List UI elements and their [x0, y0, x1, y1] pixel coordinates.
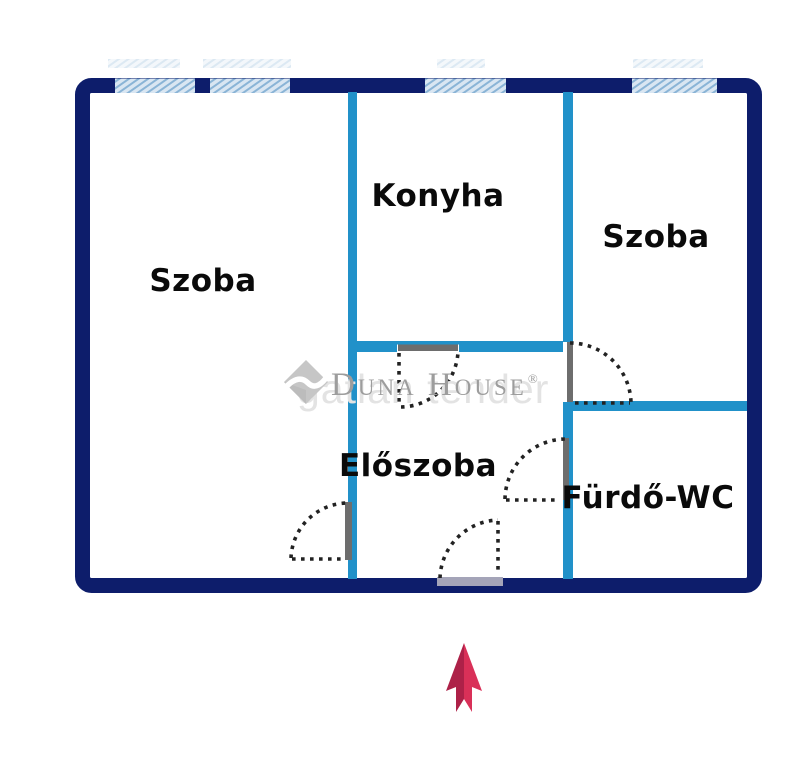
door-szoba-right-leaf	[567, 342, 573, 402]
window-1	[115, 79, 195, 94]
wall-konyha-eloszoba-b	[459, 341, 563, 352]
wall-konyha-eloszoba-a	[353, 341, 397, 352]
room-label-furdo-wc: Fürdő-WC	[560, 480, 736, 516]
floorplan-drawing	[0, 0, 810, 768]
room-label-szoba-right: Szoba	[570, 219, 742, 255]
door-konyha-leaf	[398, 345, 458, 352]
wall-konyha-lintel-line	[397, 341, 459, 345]
wall-szoba-furdo	[573, 401, 747, 411]
floorplan-canvas: Szoba Konyha Szoba Előszoba Fürdő-WC gat…	[0, 0, 810, 768]
ghost-artifacts	[108, 59, 703, 68]
entrance-door-sill	[437, 577, 503, 586]
room-label-konyha: Konyha	[350, 178, 526, 214]
window-4	[632, 79, 717, 94]
door-szoba-left-leaf	[345, 502, 352, 560]
window-3	[425, 79, 506, 94]
room-label-szoba-left: Szoba	[108, 263, 298, 299]
room-label-eloszoba: Előszoba	[330, 448, 506, 484]
north-arrow-icon	[446, 643, 482, 712]
window-2	[210, 79, 290, 94]
